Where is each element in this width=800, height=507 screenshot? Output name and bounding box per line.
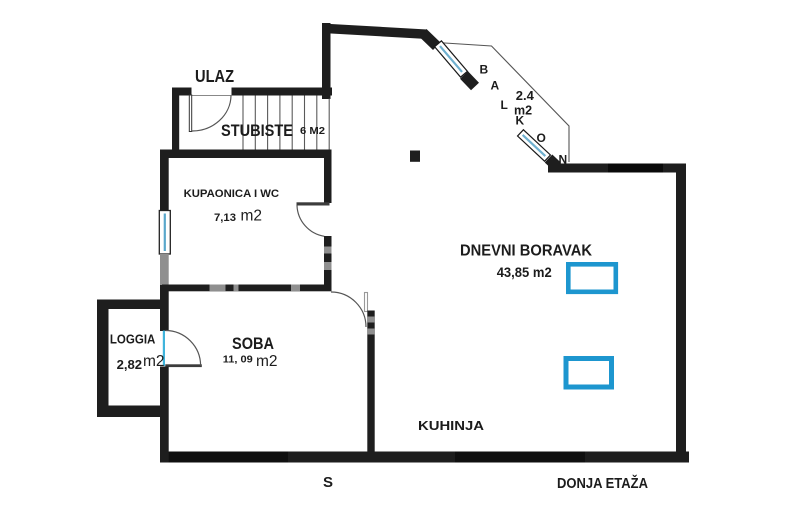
svg-text:O: O (537, 131, 546, 145)
svg-text:A: A (491, 79, 500, 93)
svg-text:DONJA ETAŽA: DONJA ETAŽA (557, 474, 648, 492)
svg-text:2,82: 2,82 (117, 357, 143, 372)
svg-text:m2: m2 (143, 353, 165, 370)
svg-text:7,13: 7,13 (214, 212, 236, 224)
svg-text:S: S (323, 474, 333, 491)
svg-text:LOGGIA: LOGGIA (110, 332, 156, 347)
svg-text:L: L (501, 98, 508, 112)
svg-text:ULAZ: ULAZ (195, 66, 234, 86)
svg-text:m2: m2 (241, 208, 263, 225)
svg-text:m2: m2 (514, 104, 532, 118)
svg-text:N: N (559, 153, 568, 167)
svg-text:SOBA: SOBA (232, 335, 274, 353)
svg-text:B: B (480, 63, 489, 77)
svg-text:2.4: 2.4 (516, 88, 535, 103)
svg-text:KUHINJA: KUHINJA (418, 418, 484, 433)
svg-text:STUBISTE: STUBISTE (221, 122, 293, 140)
svg-text:DNEVNI BORAVAK: DNEVNI BORAVAK (460, 243, 593, 260)
svg-text:43,85 m2: 43,85 m2 (497, 264, 552, 280)
svg-text:m2: m2 (256, 353, 278, 370)
svg-text:KUPAONICA I WC: KUPAONICA I WC (184, 188, 280, 200)
svg-text:11, 09: 11, 09 (223, 354, 253, 366)
svg-text:6 M2: 6 M2 (300, 125, 325, 137)
